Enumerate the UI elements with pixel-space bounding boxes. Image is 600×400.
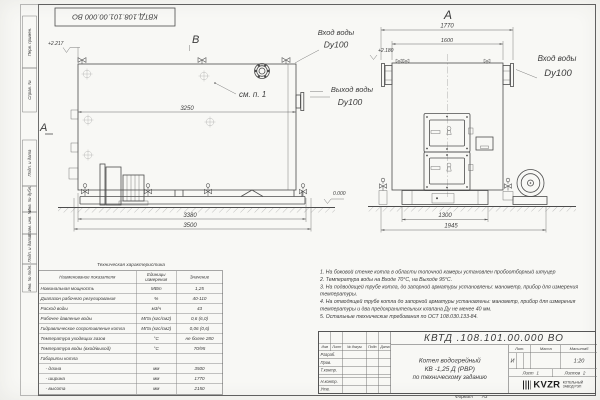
view-label-b: В xyxy=(192,34,199,46)
tech-table-row: - высота мм 2150 xyxy=(39,384,223,394)
tech-cell-value xyxy=(177,354,223,364)
tech-characteristics: Техническая характеристика Наименование … xyxy=(38,262,224,395)
product-line-1: Котел водогрейный xyxy=(419,357,481,365)
revision-header: Изм Лист № докум. Подп. Дата xyxy=(319,344,391,351)
title-block-signatures: Изм Лист № докум. Подп. Дата Разраб. Про… xyxy=(319,332,391,393)
tech-cell-name: Диапазон рабочего регулирования xyxy=(39,294,137,304)
margin-stamp-6: Подп. и дата xyxy=(27,235,32,263)
outlet-label: Выход воды xyxy=(331,85,374,94)
sheets-row: Лист 1 Листов 2 xyxy=(509,369,597,377)
tech-cell-value: 1770 xyxy=(177,374,223,384)
tech-table-row: Диапазон рабочего регулирования % 40-110 xyxy=(39,294,223,304)
outlet-dn: Dy100 xyxy=(338,97,363,107)
tech-cell-name: - высота xyxy=(39,384,137,394)
stat-header: Лит. Масса Масштаб xyxy=(509,345,597,353)
margin-stamp-1: Перв. примен. xyxy=(27,28,32,57)
col-podp: Подп. xyxy=(367,344,379,351)
col-docnum: № докум. xyxy=(343,344,367,351)
elevation-zero: 0.000 xyxy=(324,191,346,204)
sig-row-prov: Пров. xyxy=(319,359,391,367)
tech-cell-name: Расход воды xyxy=(39,304,137,314)
tech-cell-units: °С xyxy=(137,334,177,344)
drawing-sheet: Перв. примен. Справ. № Подп. и дата Инв.… xyxy=(0,0,600,400)
note-item: 4. На отводящей трубе котла до запорной … xyxy=(320,299,581,314)
front-dimensions: 1770 1600 1300 1945 xyxy=(381,24,546,233)
col-list: Лист xyxy=(331,344,343,351)
tech-table-row: Температура воды (вход/выход) °С 70/95 xyxy=(39,344,223,354)
scale-label: Масштаб xyxy=(561,345,597,353)
col-izm: Изм xyxy=(319,344,331,351)
tech-cell-units: МВт xyxy=(137,284,177,294)
view-label-a: А xyxy=(443,8,452,22)
tech-table-row: Рабочее давление воды МПа (кгс/см2) 0,6 … xyxy=(39,314,223,324)
product-line-2: КВ -1,25 Д (РВР) xyxy=(425,365,475,373)
format-value: А3 xyxy=(482,394,488,399)
tech-cell-name: Габариты котла xyxy=(39,354,137,364)
tech-cell-units xyxy=(137,354,177,364)
dim-1300: 1300 xyxy=(438,213,452,219)
tech-cell-units: МПа (кгс/см2) xyxy=(137,314,177,324)
base-frame xyxy=(80,190,305,204)
outlet-nozzle xyxy=(296,93,304,111)
inlet-side-label: Вход воды xyxy=(318,28,355,37)
tech-table-title: Техническая характеристика xyxy=(38,262,224,271)
note-item: 1. На боковой стенке котла в области топ… xyxy=(320,269,581,276)
tech-cell-value: 40-110 xyxy=(177,294,223,304)
right-flange xyxy=(503,64,514,87)
company-logo: KVZR КОТЕЛЬНЫЙ ЗАВОД РЭП xyxy=(509,377,597,393)
tech-cell-value: не более 280 xyxy=(177,334,223,344)
note-item: 5. Остальные технические требования по О… xyxy=(320,313,581,320)
logo-text: KVZR xyxy=(533,380,560,391)
lit-value: И xyxy=(509,353,517,369)
tech-cell-name: - длина xyxy=(39,364,137,374)
tech-table-row: - ширина мм 1770 xyxy=(39,374,223,384)
tech-table-row: - длина мм 3500 xyxy=(39,364,223,374)
sig-row-tkontr: Т.контр. xyxy=(319,367,391,375)
sig-row-utv: Утв. xyxy=(319,386,391,393)
mass-label: Масса xyxy=(531,345,561,353)
inlet-side-dn: Dy100 xyxy=(324,40,349,50)
product-line-3: по техническому заданию xyxy=(413,374,487,382)
nameplate xyxy=(476,137,493,150)
elevation-mark-top: +2.217 xyxy=(48,41,80,62)
col-data: Дата xyxy=(379,344,391,351)
front-view: 1770 1600 1300 1945 А 0.000 +2.180 xyxy=(324,8,576,233)
tech-cell-name: Температура уходящих газов xyxy=(39,334,137,344)
sheets-label: Листов xyxy=(565,370,580,375)
mass-value xyxy=(531,353,561,369)
margin-stamp-7: Инв. № подл. xyxy=(27,265,32,292)
tech-cell-name: Температура воды (вход/выход) xyxy=(39,344,137,354)
svg-text:0.000: 0.000 xyxy=(333,191,346,197)
dim-1600: 1600 xyxy=(441,38,454,44)
title-block: Изм Лист № докум. Подп. Дата Разраб. Про… xyxy=(318,331,596,394)
sheet-value: 1 xyxy=(537,370,539,375)
front-base xyxy=(402,191,488,205)
tech-cell-value: 70/95 xyxy=(177,344,223,354)
tech-table-row: Габариты котла xyxy=(39,354,223,364)
mirrored-code-stamp: КВТД.108.101.00.000 ВО xyxy=(72,13,158,22)
tech-cell-units: мм xyxy=(137,384,177,394)
sampling-flange xyxy=(255,64,270,79)
note-item: 3. На подводящей трубе котла, до запорно… xyxy=(320,284,581,299)
inlet-front-dn: Dy100 xyxy=(544,68,572,79)
margin-stamp-4: Инв. № дубл. xyxy=(27,186,32,212)
svg-text:+2.180: +2.180 xyxy=(378,48,394,54)
tech-cell-value: 0,06 (0,6) xyxy=(177,324,223,334)
margin-stamp-2: Справ. № xyxy=(27,80,32,100)
side-view: 3250 3380 3500 +2.217 А В см. п. 1 xyxy=(39,34,335,232)
logo-bars-icon xyxy=(523,381,531,390)
tech-table-row: Расход воды м3/ч 43 xyxy=(39,304,223,314)
dim-3380: 3380 xyxy=(183,213,197,219)
product-title: Котел водогрейный КВ -1,25 Д (РВР) по те… xyxy=(391,345,509,393)
sheet-label: Лист xyxy=(523,370,534,375)
margin-stamp-3: Подп. и дата xyxy=(27,149,32,177)
tech-table-header: Наименование показателя Единицы измерени… xyxy=(39,271,223,284)
tech-cell-value: 3500 xyxy=(177,364,223,374)
tech-cell-value: 2150 xyxy=(177,384,223,394)
dim-3500: 3500 xyxy=(183,223,197,229)
technical-notes: 1. На боковой стенке котла в области топ… xyxy=(320,269,597,331)
logo-sub-2: ЗАВОД РЭП xyxy=(563,385,583,389)
tech-header-name: Наименование показателя xyxy=(39,271,137,284)
tech-table: Наименование показателя Единицы измерени… xyxy=(38,271,223,395)
tech-table-row: Температура уходящих газов °С не более 2… xyxy=(39,334,223,344)
drawing-code: КВТД .108.101.00.000 ВО xyxy=(391,332,597,345)
revision-row-empty xyxy=(319,332,391,344)
tech-cell-value: 0,6 (6,0) xyxy=(177,314,223,324)
sheets-value: 2 xyxy=(583,370,585,375)
dim-1945: 1945 xyxy=(444,224,458,230)
section-label-a: А xyxy=(39,122,47,134)
tech-cell-name: Номинальная мощность xyxy=(39,284,137,294)
format-word: Формат xyxy=(455,394,473,399)
furnace-doors xyxy=(424,114,473,191)
tech-cell-name: - ширина xyxy=(39,374,137,384)
format-label: Формат А3 xyxy=(455,394,595,400)
scale-value: 1:20 xyxy=(561,353,597,369)
tech-cell-value: 1,25 xyxy=(177,284,223,294)
inlet-front-label: Вход воды xyxy=(538,54,577,63)
tech-table-body: Номинальная мощность МВт 1,25 Диапазон р… xyxy=(39,284,223,394)
blower-unit xyxy=(100,164,148,205)
stat-values: И 1:20 xyxy=(509,353,597,369)
lit-label: Лит. xyxy=(509,345,531,353)
side-dimensions: 3250 3380 3500 xyxy=(74,106,311,232)
tech-cell-units: мм xyxy=(137,364,177,374)
tech-table-row: Гидравлическое сопротивление котла МПа (… xyxy=(39,324,223,334)
tech-cell-value: 43 xyxy=(177,304,223,314)
margin-stamp-5: Взам. инв. № xyxy=(27,209,32,236)
tech-cell-units: °С xyxy=(137,344,177,354)
tech-cell-name: Гидравлическое сопротивление котла xyxy=(39,324,137,334)
note-item: 2. Температура воды на Входе 70°С, на Вы… xyxy=(320,276,581,283)
fan xyxy=(503,170,547,205)
tech-cell-name: Рабочее давление воды xyxy=(39,314,137,324)
tech-table-row: Номинальная мощность МВт 1,25 xyxy=(39,284,223,294)
tech-cell-units: % xyxy=(137,294,177,304)
pipe-labels: Вход воды Dy100 Выход воды Dy100 Вход во… xyxy=(295,28,577,107)
svg-text:+2.217: +2.217 xyxy=(48,41,64,47)
left-flange xyxy=(382,64,393,87)
tech-header-units: Единицы измерения xyxy=(137,271,177,284)
tech-cell-units: МПа (кгс/см2) xyxy=(137,324,177,334)
dim-1770: 1770 xyxy=(440,24,454,30)
elevation-pipe: +2.180 xyxy=(370,48,394,60)
tech-cell-units: мм xyxy=(137,374,177,384)
tech-header-value: Значение xyxy=(177,271,223,284)
svg-text:см. п. 1: см. п. 1 xyxy=(239,90,266,99)
sig-row-nkontr: Н.контр. xyxy=(319,378,391,386)
tech-cell-units: м3/ч xyxy=(137,304,177,314)
dim-3250: 3250 xyxy=(180,106,194,112)
callout-see-note-1: см. п. 1 xyxy=(214,82,266,99)
sig-row-razrab: Разраб. xyxy=(319,351,391,359)
